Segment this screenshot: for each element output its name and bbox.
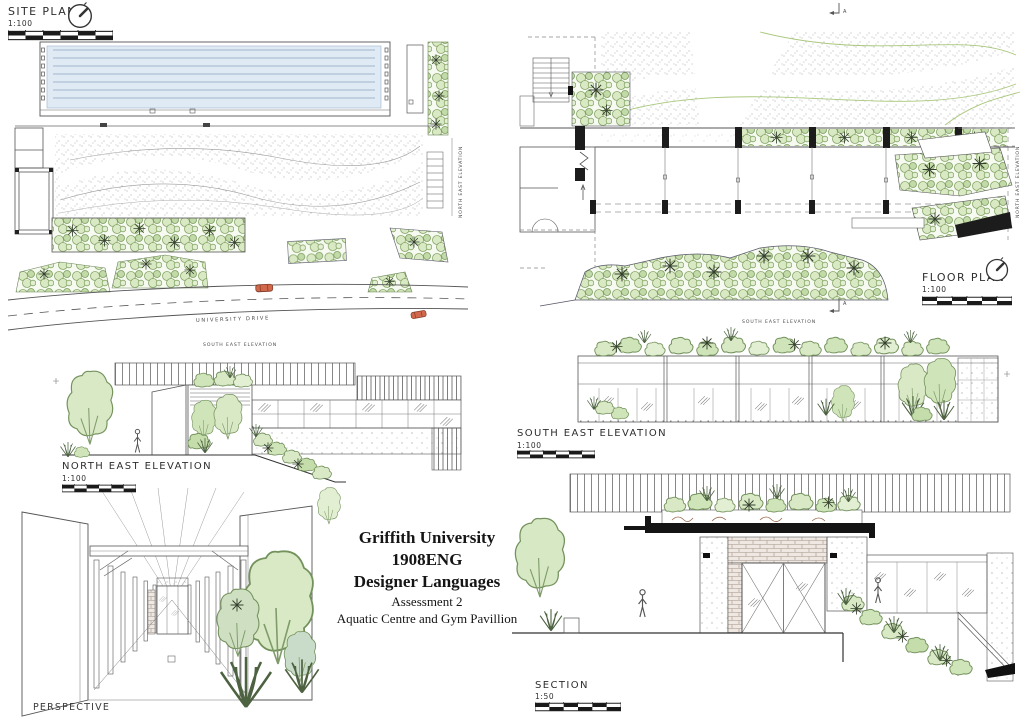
site-se-elevation-label: SOUTH EAST ELEVATION [203,342,277,348]
car [411,310,427,319]
site-building-west [15,128,53,234]
perspective-drawing [8,486,340,723]
svg-text:A: A [843,9,847,15]
site-plan-scale-bar [8,30,113,41]
se-elevation-title: SOUTH EAST ELEVATION [517,428,667,439]
site-stair [427,152,443,208]
assessment: Assessment 2 [298,593,556,610]
site-plan-scale: 1:100 [8,19,33,28]
swimming-pool [40,42,390,116]
slat-screen-right [357,376,461,400]
se-roof-planting [595,327,950,356]
project-university: Griffith University [298,527,556,549]
title-block: Griffith University 1908ENG Designer Lan… [298,527,556,627]
floor-stairs [533,58,569,102]
se-elevation-scale-bar [517,450,595,459]
floor-plan-scale-bar [922,296,1012,306]
site-ne-elevation-label: NORTH EAST ELEVATION [458,146,464,218]
person-figure [134,429,141,452]
perspective-title: PERSPECTIVE [33,702,110,713]
road-label: UNIVERSITY DRIVE [196,315,270,324]
project-name: Aquatic Centre and Gym Pavillion [298,610,556,627]
ne-elevation-title: NORTH EAST ELEVATION [62,461,212,472]
svg-text:A: A [843,301,847,307]
section-title: SECTION [535,680,589,691]
floor-planting-pocket [568,72,630,126]
section-marker-top: A [829,3,847,15]
floor-left-rooms [520,147,595,232]
floor-se-elevation-label: SOUTH EAST ELEVATION [742,319,816,325]
floor-plan-scale: 1:100 [922,285,947,294]
section-ground [512,633,843,662]
left-wall [22,512,88,716]
ne-glazing [252,400,461,428]
se-elevation-drawing [510,328,1024,468]
floor-east-beds [852,132,1012,240]
ne-elevation-scale: 1:100 [62,474,87,483]
north-arrow-icon [984,257,1010,283]
floor-south-hedge [540,246,888,306]
ne-elevation-drawing [48,350,468,502]
ne-elevation-scale-bar [62,484,136,493]
section-scale-bar [535,702,621,712]
course-name: Designer Languages [298,571,556,593]
section-scale: 1:50 [535,692,554,701]
site-plan-drawing: UNIVERSITY DRIVE SOUTH EAST ELEVATION NO… [0,0,505,355]
vegetation-band [52,218,245,252]
vegetation-bed-mid [287,238,346,263]
person-figure [639,590,647,617]
section-entry [700,537,867,633]
section-canopy [624,510,875,538]
planting-strip-east [428,42,448,135]
floor-terrain [600,30,1020,128]
vegetation-bed-east [390,228,448,262]
pool-walkway [407,45,423,113]
se-elevation-scale: 1:100 [517,441,542,450]
floor-ne-elevation-label: NORTH EAST ELEVATION [1015,146,1021,218]
course-code: 1908ENG [298,549,556,571]
tree [67,371,113,444]
drawing-sheet: UNIVERSITY DRIVE SOUTH EAST ELEVATION NO… [0,0,1024,723]
north-arrow-icon [66,2,94,30]
car [256,284,273,292]
terrain-stipple [55,134,423,216]
